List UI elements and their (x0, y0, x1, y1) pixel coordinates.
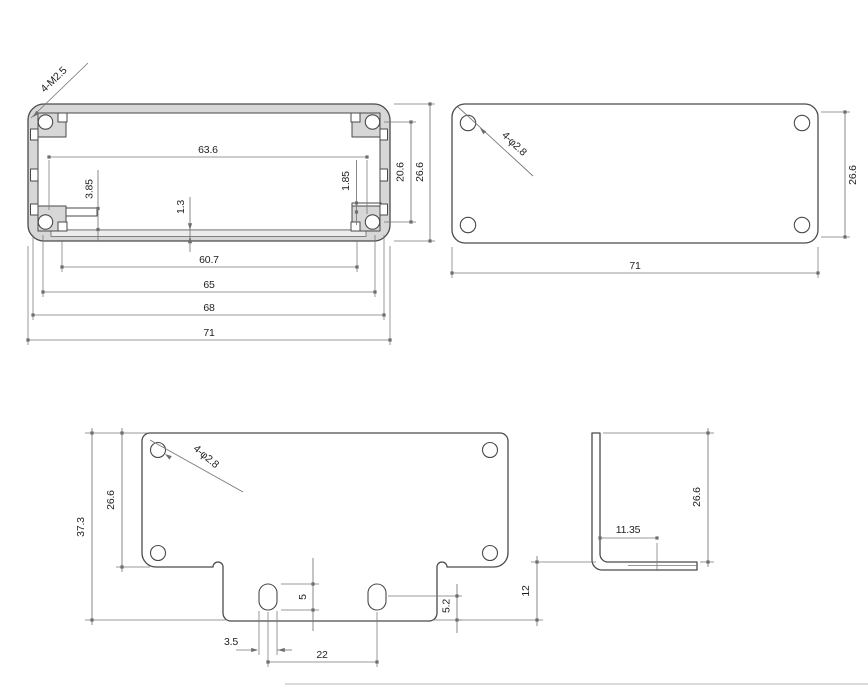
svg-text:3.85: 3.85 (84, 179, 96, 199)
dim-inner-frame-width: 65 (41, 235, 376, 297)
svg-text:5: 5 (297, 594, 309, 600)
svg-text:12: 12 (520, 585, 532, 597)
svg-text:22: 22 (316, 649, 328, 661)
screw-hole-icon (38, 115, 52, 129)
cad-drawing-sheet: 4-M2.5 63.6 3.85 1.3 1.85 (0, 0, 868, 694)
plate-hole-icon (151, 546, 166, 561)
svg-text:26.6: 26.6 (414, 162, 426, 182)
plate-hole-icon (794, 115, 809, 130)
cross-section-left-wall-slot-2 (31, 169, 39, 181)
svg-text:26.6: 26.6 (105, 490, 117, 510)
svg-text:63.6: 63.6 (198, 144, 218, 156)
svg-text:68: 68 (203, 302, 215, 314)
cross-section-view: 4-M2.5 63.6 3.85 1.3 1.85 (26, 63, 435, 345)
screw-hole-icon (365, 115, 379, 129)
dim-boss-span: 68 (31, 235, 385, 320)
screw-hole-icon (38, 215, 52, 229)
cross-section-right-wall-slot-2 (380, 169, 388, 181)
plate-hole-icon (794, 217, 809, 232)
screw-boss-bottom-right (351, 206, 380, 231)
screw-hole-icon (365, 215, 379, 229)
dim-plate-width: 71 (450, 247, 819, 278)
flat-pattern-view: 4-φ2.8 37.3 26.6 5 5.2 (75, 428, 508, 667)
svg-text:71: 71 (629, 260, 641, 272)
svg-text:60.7: 60.7 (199, 254, 219, 266)
svg-text:65: 65 (203, 279, 215, 291)
dim-plate-height: 26.6 (821, 110, 859, 238)
end-plate-view: 4-φ2.8 26.6 71 (450, 104, 859, 278)
svg-text:3.5: 3.5 (224, 636, 238, 648)
svg-text:1.85: 1.85 (340, 171, 352, 191)
flat-pattern-outline (142, 433, 508, 621)
svg-text:26.6: 26.6 (691, 487, 703, 507)
svg-text:26.6: 26.6 (847, 165, 859, 185)
screw-boss-bottom-left (38, 206, 67, 231)
plate-hole-icon (483, 546, 498, 561)
screw-boss-top-right (351, 113, 380, 137)
plate-hole-icon (483, 443, 498, 458)
end-plate-outline (452, 104, 818, 243)
cross-section-right-wall-slot-1 (380, 129, 388, 140)
svg-text:71: 71 (203, 327, 215, 339)
svg-text:11.35: 11.35 (616, 524, 641, 536)
dim-side-height: 26.6 (603, 428, 714, 567)
plate-hole-icon (460, 217, 475, 232)
tab-slot-left (259, 584, 277, 610)
cross-section-right-wall-slot-3 (380, 204, 388, 215)
side-profile-outline (592, 433, 697, 570)
cross-section-left-wall-slot-3 (31, 204, 39, 215)
drawing-svg: 4-M2.5 63.6 3.85 1.3 1.85 (0, 0, 868, 694)
thread-callout-label: 4-M2.5 (38, 64, 69, 95)
svg-text:5.2: 5.2 (441, 599, 453, 613)
plate-hole-icon (460, 115, 475, 130)
dim-slot-span: 60.7 (60, 241, 358, 272)
svg-text:1.3: 1.3 (175, 200, 187, 214)
cross-section-left-wall-slot-1 (31, 129, 39, 140)
svg-text:37.3: 37.3 (75, 517, 87, 537)
svg-text:20.6: 20.6 (395, 162, 407, 182)
screw-boss-top-left (38, 113, 67, 137)
tab-slot-right (368, 584, 386, 610)
